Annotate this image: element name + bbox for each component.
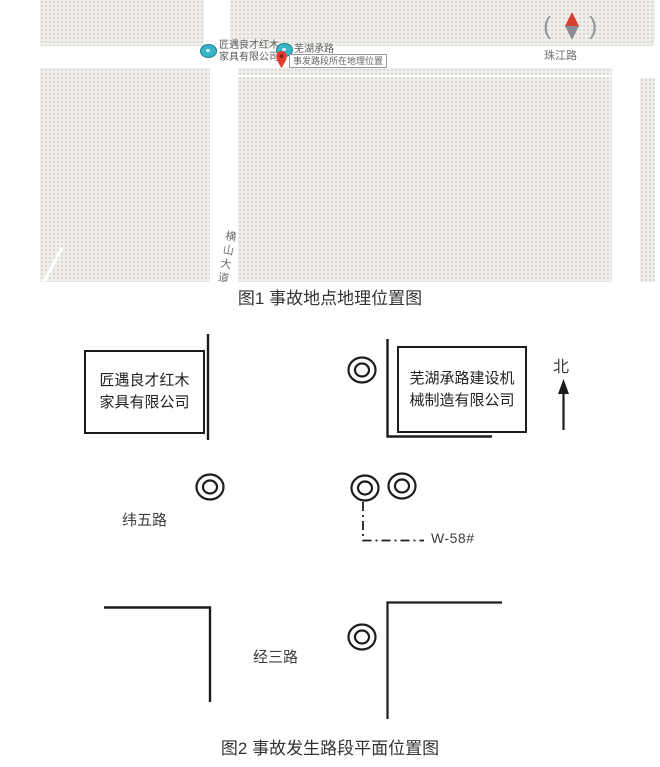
map-compass-control: ( ) — [543, 8, 601, 48]
map-block-left — [40, 68, 210, 282]
figure1-caption: 图1 事故地点地理位置图 — [0, 284, 660, 309]
road-weiwu-label: 纬五路 — [122, 509, 167, 530]
marker-dot — [206, 49, 210, 52]
pole-id-label: W-58# — [431, 530, 474, 546]
pole-symbol-top — [349, 358, 376, 383]
accident-pin-icon — [276, 51, 287, 68]
pole-leader-dashdot-line — [363, 502, 424, 541]
map-block-far-right — [640, 78, 655, 282]
pole-symbol-w58 — [352, 476, 379, 501]
north-arrow-head — [558, 379, 569, 394]
left-company-box: 匠遇良才红木 家具有限公司 — [84, 350, 205, 434]
compass-needle-icon — [565, 12, 579, 40]
map-street-line — [238, 75, 612, 77]
map-company1-line1: 匠遇良才红木 — [219, 40, 279, 52]
map-company1-line2: 家具有限公司 — [219, 52, 279, 64]
road-jingsan-label: 经三路 — [253, 646, 298, 667]
location-map-image: 匠遇良才红木 家具有限公司 芜湖承路 事发路段所在地理位置 珠江路 横山大道 (… — [40, 0, 655, 282]
compass-right-paren: ) — [589, 14, 597, 39]
left-company-line2: 家具有限公司 — [99, 392, 189, 414]
report-page: 匠遇良才红木 家具有限公司 芜湖承路 事发路段所在地理位置 珠江路 横山大道 (… — [0, 0, 660, 767]
right-company-box: 芜湖承路建设机 械制造有限公司 — [397, 346, 527, 433]
left-company-line1: 匠遇良才红木 — [99, 370, 189, 392]
utility-pole-symbols — [197, 358, 416, 650]
map-road-zhujiang-label: 珠江路 — [544, 47, 577, 63]
right-company-line2: 械制造有限公司 — [409, 390, 514, 412]
accident-pin-label: 事发路段所在地理位置 — [289, 54, 387, 68]
pole-symbol-weiwu-right — [389, 474, 416, 499]
map-block-top-left — [40, 0, 204, 46]
north-label: 北 — [553, 353, 569, 377]
compass-north-triangle — [565, 12, 579, 26]
figure2-caption: 图2 事故发生路段平面位置图 — [0, 734, 660, 759]
map-block-right — [238, 68, 612, 282]
pole-symbol-jingsan — [349, 625, 376, 650]
right-company-line1: 芜湖承路建设机 — [409, 368, 514, 390]
map-road-hengshan-label: 横山大道 — [213, 229, 238, 282]
road-corner-lower-left — [104, 608, 210, 703]
map-marker-company1 — [200, 44, 217, 58]
pole-symbol-weiwu-left — [197, 475, 224, 500]
compass-left-paren: ( — [543, 14, 551, 39]
map-company1-label: 匠遇良才红木 家具有限公司 — [219, 40, 279, 63]
road-corner-lower-right — [388, 603, 503, 720]
compass-south-triangle — [565, 26, 579, 40]
